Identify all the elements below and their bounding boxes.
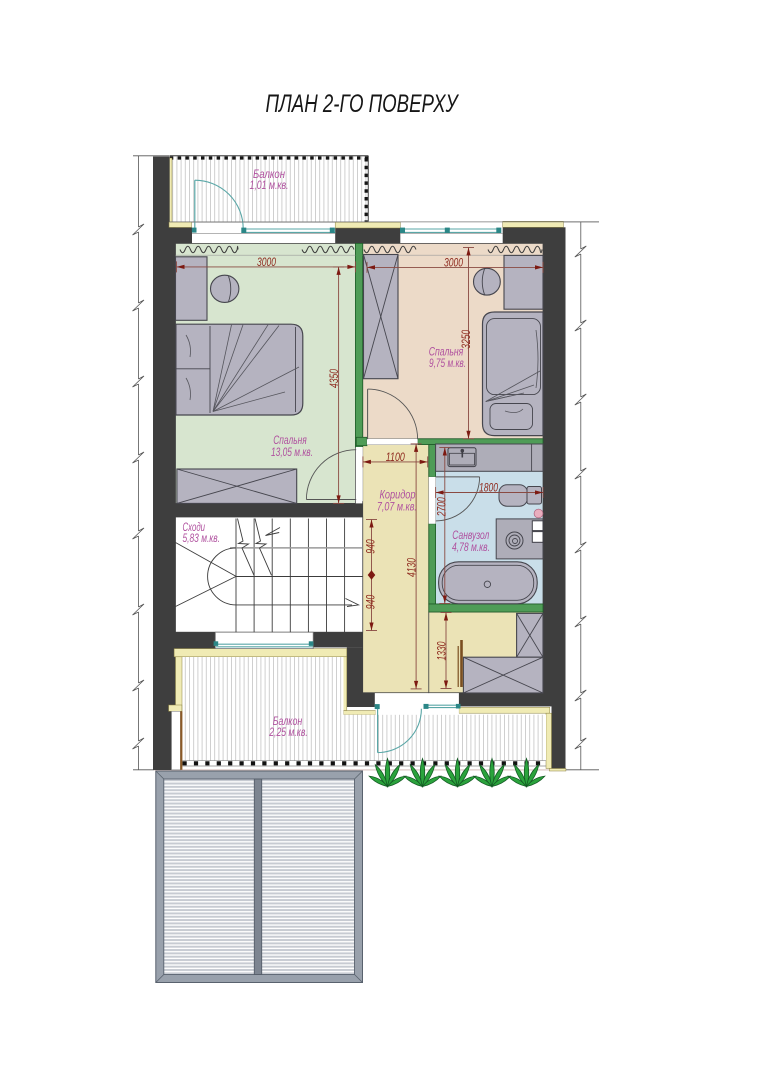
svg-text:1100: 1100 xyxy=(386,450,405,464)
svg-text:3000: 3000 xyxy=(444,255,463,269)
svg-text:4350: 4350 xyxy=(327,369,341,388)
svg-text:Спальня: Спальня xyxy=(273,435,307,447)
svg-text:5,83 м.кв.: 5,83 м.кв. xyxy=(183,533,221,545)
svg-text:ПЛАН 2-ГО ПОВЕРХУ: ПЛАН 2-ГО ПОВЕРХУ xyxy=(266,90,460,118)
svg-text:13,05 м.кв.: 13,05 м.кв. xyxy=(271,447,313,459)
svg-text:940: 940 xyxy=(363,539,377,554)
svg-text:4,78 м.кв.: 4,78 м.кв. xyxy=(452,542,490,554)
svg-text:3000: 3000 xyxy=(257,255,276,269)
svg-text:940: 940 xyxy=(363,595,377,610)
svg-text:9,75 м.кв.: 9,75 м.кв. xyxy=(429,358,466,370)
svg-text:2,25 м.кв.: 2,25 м.кв. xyxy=(268,727,307,739)
svg-text:7,07 м.кв.: 7,07 м.кв. xyxy=(377,502,417,514)
svg-text:1330: 1330 xyxy=(434,641,448,660)
svg-text:Спальня: Спальня xyxy=(429,347,464,359)
svg-text:Санвузол: Санвузол xyxy=(452,530,489,542)
svg-text:2700: 2700 xyxy=(434,497,448,517)
svg-text:1,01 м.кв.: 1,01 м.кв. xyxy=(250,180,289,192)
svg-text:Коридор: Коридор xyxy=(380,489,416,501)
svg-text:1800: 1800 xyxy=(479,481,498,495)
svg-text:4130: 4130 xyxy=(405,558,419,577)
